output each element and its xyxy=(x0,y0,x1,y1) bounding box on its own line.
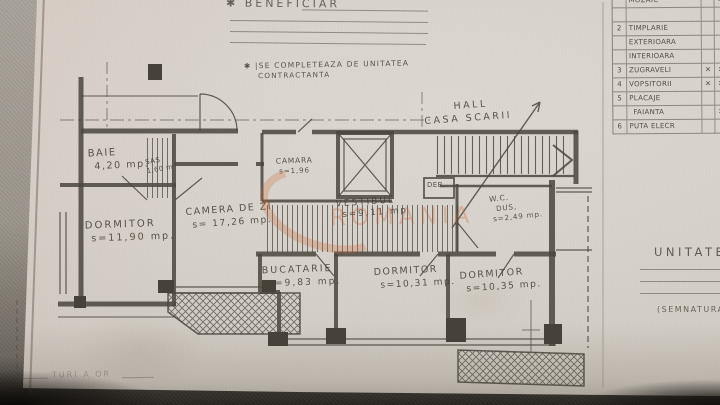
finish-table: MOZAIC✕ 2TIMPLARIE EXTERIOARA INTERIOARA… xyxy=(612,0,720,134)
balcony-1 xyxy=(168,293,300,334)
room-label-deb: DEB. xyxy=(427,181,445,190)
unitate-title: UNITATE CO xyxy=(654,245,720,261)
footnote: ✱ |SE COMPLETEAZA DE UNITATEA CONTRACTAN… xyxy=(244,59,410,82)
finish-table-row: INTERIOARA xyxy=(613,50,720,65)
finish-table-row: 5PLACAJE xyxy=(613,92,720,107)
finish-table-row: 2TIMPLARIE xyxy=(613,22,720,37)
room-label-bucatarie: BUCATARIEs=9,83 mp. xyxy=(262,263,342,291)
table-shadow-bottom-right xyxy=(580,379,720,405)
room-label-camara: CAMARAs=1,96 xyxy=(276,155,313,176)
floor-plan-photo: ✱ BENEFICIAR ✱ |SE COMPLETEAZA DE UNITAT… xyxy=(0,0,720,405)
finish-table-row: 3ZUGRAVELI✕✕ xyxy=(613,64,720,79)
footnote-line1: ✱ |SE COMPLETEAZA DE UNITATEA xyxy=(244,59,409,71)
room-label-vestibul: VESTIBULs=9,11 mp xyxy=(335,194,408,223)
signature-line xyxy=(640,293,720,294)
signature-line xyxy=(640,281,720,282)
semnatura-label: (SEMNATURA xyxy=(657,305,720,316)
balcony-2 xyxy=(458,350,584,386)
finish-table-row: 6PUTA ELECR xyxy=(613,120,720,135)
finish-table-row: EXTERIOARA xyxy=(613,36,720,51)
room-label-dormitor-1: DORMITORs=11,90 mp. xyxy=(85,216,176,246)
finish-table-row: 4VOPSITORII✕✕ xyxy=(613,78,720,93)
signature-line xyxy=(640,269,720,270)
room-label-dormitor-2: DORMITORs=10,31 mp. xyxy=(373,263,456,292)
finish-table-row: FAIANTA✕ xyxy=(613,106,720,121)
finish-table-row xyxy=(613,8,720,23)
room-label-wc-dus: W.C.DUS,s=2,49 mp. xyxy=(489,189,544,224)
table-shadow-bottom-left xyxy=(0,371,160,405)
elevator-shaft xyxy=(338,133,392,197)
room-label-baie: BAIE4,20 mp. xyxy=(87,144,149,174)
